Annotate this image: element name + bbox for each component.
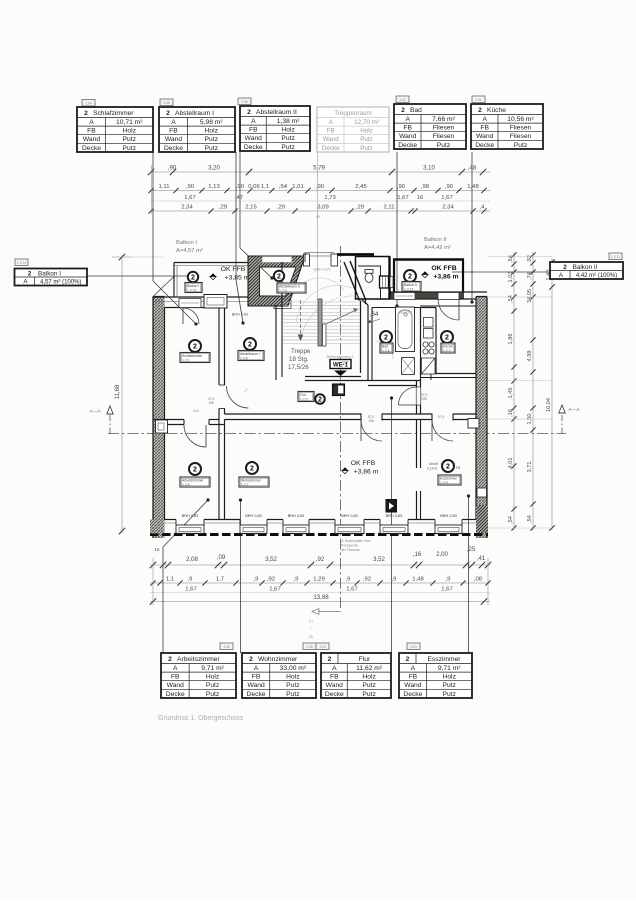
svg-text:Abstellraum II: Abstellraum II — [256, 109, 297, 116]
svg-text:+3,85 m: +3,85 m — [225, 275, 250, 282]
svg-text:Wand: Wand — [83, 136, 101, 143]
svg-text:87,5: 87,5 — [342, 361, 348, 365]
svg-text:OK FFB: OK FFB — [221, 266, 246, 273]
svg-text:,9: ,9 — [254, 577, 259, 583]
svg-text:BRH 0,83: BRH 0,83 — [288, 514, 304, 518]
svg-text:,98: ,98 — [421, 184, 430, 190]
svg-text:Abluft: Abluft — [429, 462, 438, 466]
svg-text:Holz: Holz — [281, 127, 295, 134]
svg-text:2: 2 — [250, 466, 254, 473]
svg-text:,92: ,92 — [267, 577, 275, 583]
svg-text:Holz: Holz — [123, 128, 137, 135]
svg-text:2: 2 — [478, 107, 482, 114]
svg-text:Putz: Putz — [205, 136, 219, 143]
svg-text:Wand: Wand — [245, 135, 263, 142]
svg-text:,16: ,16 — [413, 551, 422, 558]
svg-text:4,42 m² (100%): 4,42 m² (100%) — [576, 273, 617, 279]
svg-text:1,67: 1,67 — [185, 587, 196, 593]
svg-text:Grundriss 1. Obergeschoss: Grundriss 1. Obergeschoss — [158, 715, 244, 722]
svg-text:2: 2 — [445, 335, 449, 342]
svg-text:2: 2 — [406, 656, 410, 663]
svg-text:,74: ,74 — [527, 272, 533, 280]
svg-text:,92: ,92 — [316, 556, 325, 563]
svg-text:FB: FB — [409, 674, 418, 681]
svg-text:2: 2 — [563, 264, 567, 271]
svg-text:198: 198 — [368, 419, 374, 423]
svg-text:1.2.4: 1.2.4 — [382, 349, 390, 353]
svg-text:A: A — [171, 119, 176, 126]
svg-text:4,99: 4,99 — [527, 351, 533, 362]
svg-text:1.2.11: 1.2.11 — [404, 287, 413, 291]
svg-text:Fliesen: Fliesen — [510, 133, 532, 140]
svg-text:Decke: Decke — [322, 145, 340, 152]
svg-text:0,06: 0,06 — [248, 184, 260, 190]
svg-text:A: A — [332, 665, 337, 672]
svg-text:1.05: 1.05 — [306, 645, 313, 649]
svg-text:,4: ,4 — [480, 205, 486, 211]
svg-text:,9: ,9 — [294, 577, 299, 583]
svg-text:1.2.1: 1.2.1 — [182, 358, 190, 362]
svg-text:,54: ,54 — [508, 295, 514, 303]
svg-text:3,52: 3,52 — [373, 556, 385, 563]
svg-text:+3,86 m: +3,86 m — [433, 274, 458, 281]
svg-text:1,11: 1,11 — [158, 184, 169, 190]
svg-text:A—A: A—A — [568, 407, 580, 413]
svg-text:Balkon II: Balkon II — [573, 264, 598, 271]
svg-text:OK FFB: OK FFB — [431, 265, 456, 272]
svg-text:A: A — [405, 116, 410, 123]
svg-text:Wohnzimmer: Wohnzimmer — [258, 656, 298, 663]
svg-text:Putz: Putz — [206, 682, 220, 689]
svg-text:2: 2 — [401, 107, 405, 114]
svg-text:I: I — [311, 627, 312, 631]
svg-text:13,88: 13,88 — [313, 594, 329, 601]
svg-text:FB: FB — [249, 127, 258, 134]
svg-text:Decke: Decke — [403, 691, 422, 698]
svg-text:11,68: 11,68 — [115, 384, 121, 399]
svg-text:Putz: Putz — [442, 691, 456, 698]
svg-text:Putz: Putz — [206, 691, 220, 698]
svg-text:Fliesen: Fliesen — [433, 133, 455, 140]
svg-text:Holz: Holz — [360, 128, 373, 135]
svg-text:1,67: 1,67 — [441, 587, 452, 593]
svg-text:BRH 0,83: BRH 0,83 — [386, 514, 402, 518]
svg-text:Wand: Wand — [404, 682, 422, 689]
svg-text:,08: ,08 — [474, 577, 483, 583]
svg-text:2,00: 2,00 — [436, 551, 448, 558]
svg-text:Küche: Küche — [487, 107, 506, 114]
svg-text:60: 60 — [316, 215, 320, 219]
svg-text:1.2.8: 1.2.8 — [240, 356, 248, 360]
svg-text:A: A — [89, 119, 94, 126]
svg-text:,29: ,29 — [356, 205, 364, 211]
svg-text:Wand: Wand — [247, 682, 265, 689]
svg-text:Decke: Decke — [164, 145, 183, 152]
svg-text:Holz: Holz — [286, 674, 300, 681]
svg-text:Decke: Decke — [325, 691, 344, 698]
svg-text:198: 198 — [208, 401, 214, 405]
svg-text:Decke: Decke — [82, 145, 101, 152]
svg-text:1,67: 1,67 — [346, 587, 357, 593]
svg-text:Schlafzimmer: Schlafzimmer — [93, 110, 134, 117]
svg-text:Putz: Putz — [205, 145, 219, 152]
svg-text:Balkon II: Balkon II — [424, 237, 447, 243]
svg-text:1.06: 1.06 — [223, 645, 230, 649]
svg-text:5,98 m²: 5,98 m² — [200, 119, 223, 126]
svg-text:BRH 0,83: BRH 0,83 — [245, 514, 261, 518]
svg-text:(L): (L) — [309, 619, 313, 623]
svg-text:Wand: Wand — [167, 682, 185, 689]
svg-text:Putz: Putz — [360, 145, 373, 152]
svg-text:Treppenraum: Treppenraum — [334, 110, 372, 117]
svg-text:2: 2 — [191, 275, 195, 282]
svg-text:,9: ,9 — [188, 577, 193, 583]
svg-text:3,71: 3,71 — [527, 462, 533, 473]
svg-text:,9: ,9 — [346, 577, 351, 583]
svg-text:1,38 m²: 1,38 m² — [277, 118, 300, 125]
svg-text:A=4,57 m²: A=4,57 m² — [176, 248, 203, 254]
svg-text:1.2.6: 1.2.6 — [182, 483, 190, 487]
svg-text:Holz: Holz — [362, 674, 376, 681]
svg-text:2: 2 — [318, 397, 322, 404]
svg-text:+3,86 m: +3,86 m — [354, 469, 379, 476]
svg-text:1,48: 1,48 — [412, 577, 424, 583]
svg-text:1,1: 1,1 — [166, 577, 174, 583]
svg-text:2: 2 — [168, 656, 172, 663]
svg-text:2: 2 — [84, 110, 88, 117]
svg-text:1,1: 1,1 — [261, 184, 269, 190]
svg-text:Arbeitszimmer: Arbeitszimmer — [177, 656, 221, 663]
svg-text:1.2.5: 1.2.5 — [300, 397, 308, 401]
svg-text:17,5/26: 17,5/26 — [288, 364, 309, 371]
svg-text:der Fassade: der Fassade — [341, 548, 360, 552]
svg-text:,16: ,16 — [508, 409, 514, 417]
svg-text:18 Stg.: 18 Stg. — [289, 356, 309, 363]
svg-text:,90: ,90 — [397, 184, 406, 190]
svg-text:2,45: 2,45 — [355, 184, 367, 190]
svg-text:1.2.11: 1.2.11 — [611, 255, 620, 259]
svg-text:Putz: Putz — [281, 144, 295, 151]
svg-text:1.2.10: 1.2.10 — [17, 261, 27, 265]
svg-text:2,34: 2,34 — [442, 205, 454, 211]
svg-text:Wand: Wand — [399, 133, 417, 140]
svg-text:Bad: Bad — [410, 107, 422, 114]
svg-text:Decke: Decke — [398, 142, 417, 149]
svg-text:Decke: Decke — [166, 691, 185, 698]
svg-text:FB: FB — [480, 125, 489, 132]
svg-text:9,71 m²: 9,71 m² — [438, 665, 461, 672]
svg-text:A: A — [251, 118, 256, 125]
svg-text:2: 2 — [446, 464, 450, 471]
svg-text:FB: FB — [403, 125, 412, 132]
svg-text:Holz: Holz — [205, 128, 219, 135]
svg-text:3,52: 3,52 — [265, 556, 277, 563]
svg-text:A: A — [411, 665, 416, 672]
svg-text:10,56 m²: 10,56 m² — [507, 116, 534, 123]
svg-text:Flur: Flur — [359, 656, 371, 663]
svg-text:1,03: 1,03 — [508, 272, 514, 283]
svg-text:BRH 0,83: BRH 0,83 — [341, 514, 357, 518]
svg-text:BRH 0,83: BRH 0,83 — [440, 514, 456, 518]
svg-text:,64: ,64 — [370, 312, 379, 318]
svg-text:Holz: Holz — [206, 674, 220, 681]
svg-text:2,14 m: 2,14 m — [427, 467, 438, 471]
svg-text:1.02: 1.02 — [399, 98, 406, 102]
svg-text:FB: FB — [87, 128, 96, 135]
svg-text:,09: ,09 — [217, 554, 226, 561]
svg-text:Wand: Wand — [326, 682, 344, 689]
svg-text:1.2.10: 1.2.10 — [187, 288, 197, 292]
svg-text:Balkon I: Balkon I — [176, 240, 197, 246]
svg-text:2,34: 2,34 — [181, 205, 193, 211]
svg-text:7,66 m²: 7,66 m² — [432, 116, 455, 123]
svg-text:1,48: 1,48 — [467, 184, 479, 190]
svg-text:1.01: 1.01 — [475, 98, 482, 102]
svg-text:1,86: 1,86 — [508, 334, 514, 345]
svg-text:10,71 m²: 10,71 m² — [116, 119, 143, 126]
svg-text:Fliesen: Fliesen — [433, 125, 455, 132]
svg-text:A: A — [254, 665, 259, 672]
svg-text:12,70 m²: 12,70 m² — [354, 119, 379, 126]
svg-text:1.04: 1.04 — [85, 101, 92, 105]
svg-text:BRH 0,83: BRH 0,83 — [232, 313, 248, 317]
svg-text:5,79: 5,79 — [313, 165, 325, 172]
svg-text:Putz: Putz — [123, 145, 137, 152]
svg-text:FB: FB — [327, 128, 335, 135]
svg-text:,54: ,54 — [279, 184, 288, 190]
svg-text:33,00 m²: 33,00 m² — [280, 665, 307, 672]
svg-text:1.05: 1.05 — [163, 101, 170, 105]
svg-text:Putz: Putz — [362, 682, 376, 689]
svg-text:1.2.7: 1.2.7 — [241, 483, 249, 487]
svg-text:3,10: 3,10 — [423, 165, 435, 172]
svg-text:2: 2 — [248, 342, 252, 349]
svg-text:Putz: Putz — [362, 691, 376, 698]
svg-text:1.2.2: 1.2.2 — [443, 349, 451, 353]
svg-text:,92: ,92 — [363, 577, 371, 583]
svg-text:Holz: Holz — [442, 674, 456, 681]
svg-text:,29: ,29 — [219, 205, 227, 211]
svg-text:Balkon I: Balkon I — [38, 270, 61, 277]
svg-text:2: 2 — [166, 110, 170, 117]
svg-text:,9: ,9 — [392, 577, 397, 583]
svg-text:1,73: 1,73 — [324, 195, 336, 201]
svg-text:11,5: 11,5 — [193, 409, 199, 413]
svg-text:(R): (R) — [309, 635, 313, 639]
svg-text:A: A — [482, 116, 487, 123]
svg-text:FB: FB — [252, 674, 261, 681]
svg-text:2: 2 — [249, 656, 253, 663]
svg-text:2,08: 2,08 — [186, 556, 198, 563]
svg-text:BRH 0,83: BRH 0,83 — [182, 514, 198, 518]
svg-text:2: 2 — [384, 335, 388, 342]
svg-text:(BRH 0,87): (BRH 0,87) — [314, 268, 331, 272]
svg-text:2: 2 — [193, 467, 197, 474]
svg-text:Putz: Putz — [286, 691, 300, 698]
svg-text:,54: ,54 — [508, 516, 514, 524]
svg-text:1,13: 1,13 — [208, 184, 220, 190]
svg-text:1.2.3: 1.2.3 — [279, 289, 287, 293]
svg-text:OK FFB: OK FFB — [351, 460, 376, 467]
svg-text:Putz: Putz — [281, 135, 295, 142]
svg-text:1,29: 1,29 — [313, 577, 324, 583]
svg-text:2: 2 — [247, 109, 251, 116]
svg-text:Decke: Decke — [244, 144, 263, 151]
svg-text:2: 2 — [28, 270, 32, 277]
svg-text:Putz: Putz — [437, 142, 451, 149]
svg-text:A: A — [173, 665, 178, 672]
svg-text:1.03: 1.03 — [410, 645, 417, 649]
svg-text:,9: ,9 — [446, 577, 451, 583]
svg-text:FB: FB — [330, 674, 339, 681]
svg-text:A—A: A—A — [89, 409, 101, 415]
svg-text:,90: ,90 — [168, 165, 177, 172]
svg-text:16: 16 — [417, 195, 424, 201]
svg-text:Fliesen: Fliesen — [510, 125, 532, 132]
svg-text:Putz: Putz — [442, 682, 456, 689]
svg-text:1,01: 1,01 — [292, 184, 303, 190]
svg-text:Esszimmer: Esszimmer — [427, 656, 461, 663]
svg-text:1,67: 1,67 — [269, 587, 280, 593]
svg-text:Abw 4,93: Abw 4,93 — [398, 311, 412, 315]
svg-text:2,11: 2,11 — [383, 205, 394, 211]
svg-text:FB: FB — [456, 466, 461, 470]
svg-text:34,05: 34,05 — [527, 289, 533, 303]
svg-text:1,67: 1,67 — [397, 195, 408, 201]
svg-text:Wohnungszugang 1: Wohnungszugang 1 — [327, 355, 354, 359]
svg-text:2: 2 — [328, 656, 332, 663]
svg-text:1,67: 1,67 — [184, 195, 195, 201]
svg-text:FB: FB — [169, 128, 178, 135]
svg-text:Putzgrenze: Putzgrenze — [341, 544, 358, 548]
svg-text:,90: ,90 — [445, 184, 454, 190]
svg-text:Abstellraum I: Abstellraum I — [175, 110, 214, 117]
svg-text:Putz: Putz — [360, 136, 373, 143]
svg-text:Treppe: Treppe — [291, 348, 311, 355]
svg-text:Decke: Decke — [475, 142, 494, 149]
svg-text:Putz: Putz — [123, 136, 137, 143]
svg-text:2: 2 — [193, 344, 197, 351]
svg-text:3,20: 3,20 — [208, 165, 220, 172]
svg-text:11,62 m²: 11,62 m² — [356, 665, 383, 672]
svg-text:198: 198 — [421, 397, 427, 401]
svg-text:,54: ,54 — [527, 515, 533, 523]
svg-text:Decke: Decke — [247, 691, 266, 698]
svg-text:Wand: Wand — [323, 136, 340, 143]
svg-text:1.06: 1.06 — [241, 100, 248, 104]
svg-text:4,01: 4,01 — [508, 458, 514, 469]
svg-text:16: 16 — [155, 547, 160, 552]
svg-text:2: 2 — [408, 274, 412, 281]
svg-text:1,45: 1,45 — [508, 388, 514, 399]
svg-text:1.2.9: 1.2.9 — [440, 481, 448, 485]
svg-text:10,04: 10,04 — [546, 398, 552, 412]
svg-text:4,57 m² (100%): 4,57 m² (100%) — [40, 280, 81, 286]
svg-text:3,09: 3,09 — [317, 205, 328, 211]
svg-text:Wand: Wand — [476, 133, 494, 140]
svg-text:1,7: 1,7 — [216, 577, 224, 583]
svg-text:A=4,42 m²: A=4,42 m² — [424, 245, 451, 251]
svg-text:FB: FB — [171, 674, 180, 681]
svg-text:A: Bodenplatte über: A: Bodenplatte über — [341, 539, 372, 543]
svg-text:,41: ,41 — [477, 555, 486, 562]
svg-text:Putz: Putz — [514, 142, 528, 149]
svg-text:Putz: Putz — [286, 682, 300, 689]
svg-text:1.04: 1.04 — [319, 645, 326, 649]
svg-text:9,71 m²: 9,71 m² — [201, 665, 224, 672]
svg-text:,90: ,90 — [186, 184, 195, 190]
svg-text:Wand: Wand — [165, 136, 183, 143]
svg-text:,29: ,29 — [277, 205, 285, 211]
svg-text:1,67: 1,67 — [441, 195, 452, 201]
svg-text:87,5: 87,5 — [438, 415, 444, 419]
svg-text:2: 2 — [277, 274, 281, 281]
svg-text:2,15: 2,15 — [245, 205, 257, 211]
